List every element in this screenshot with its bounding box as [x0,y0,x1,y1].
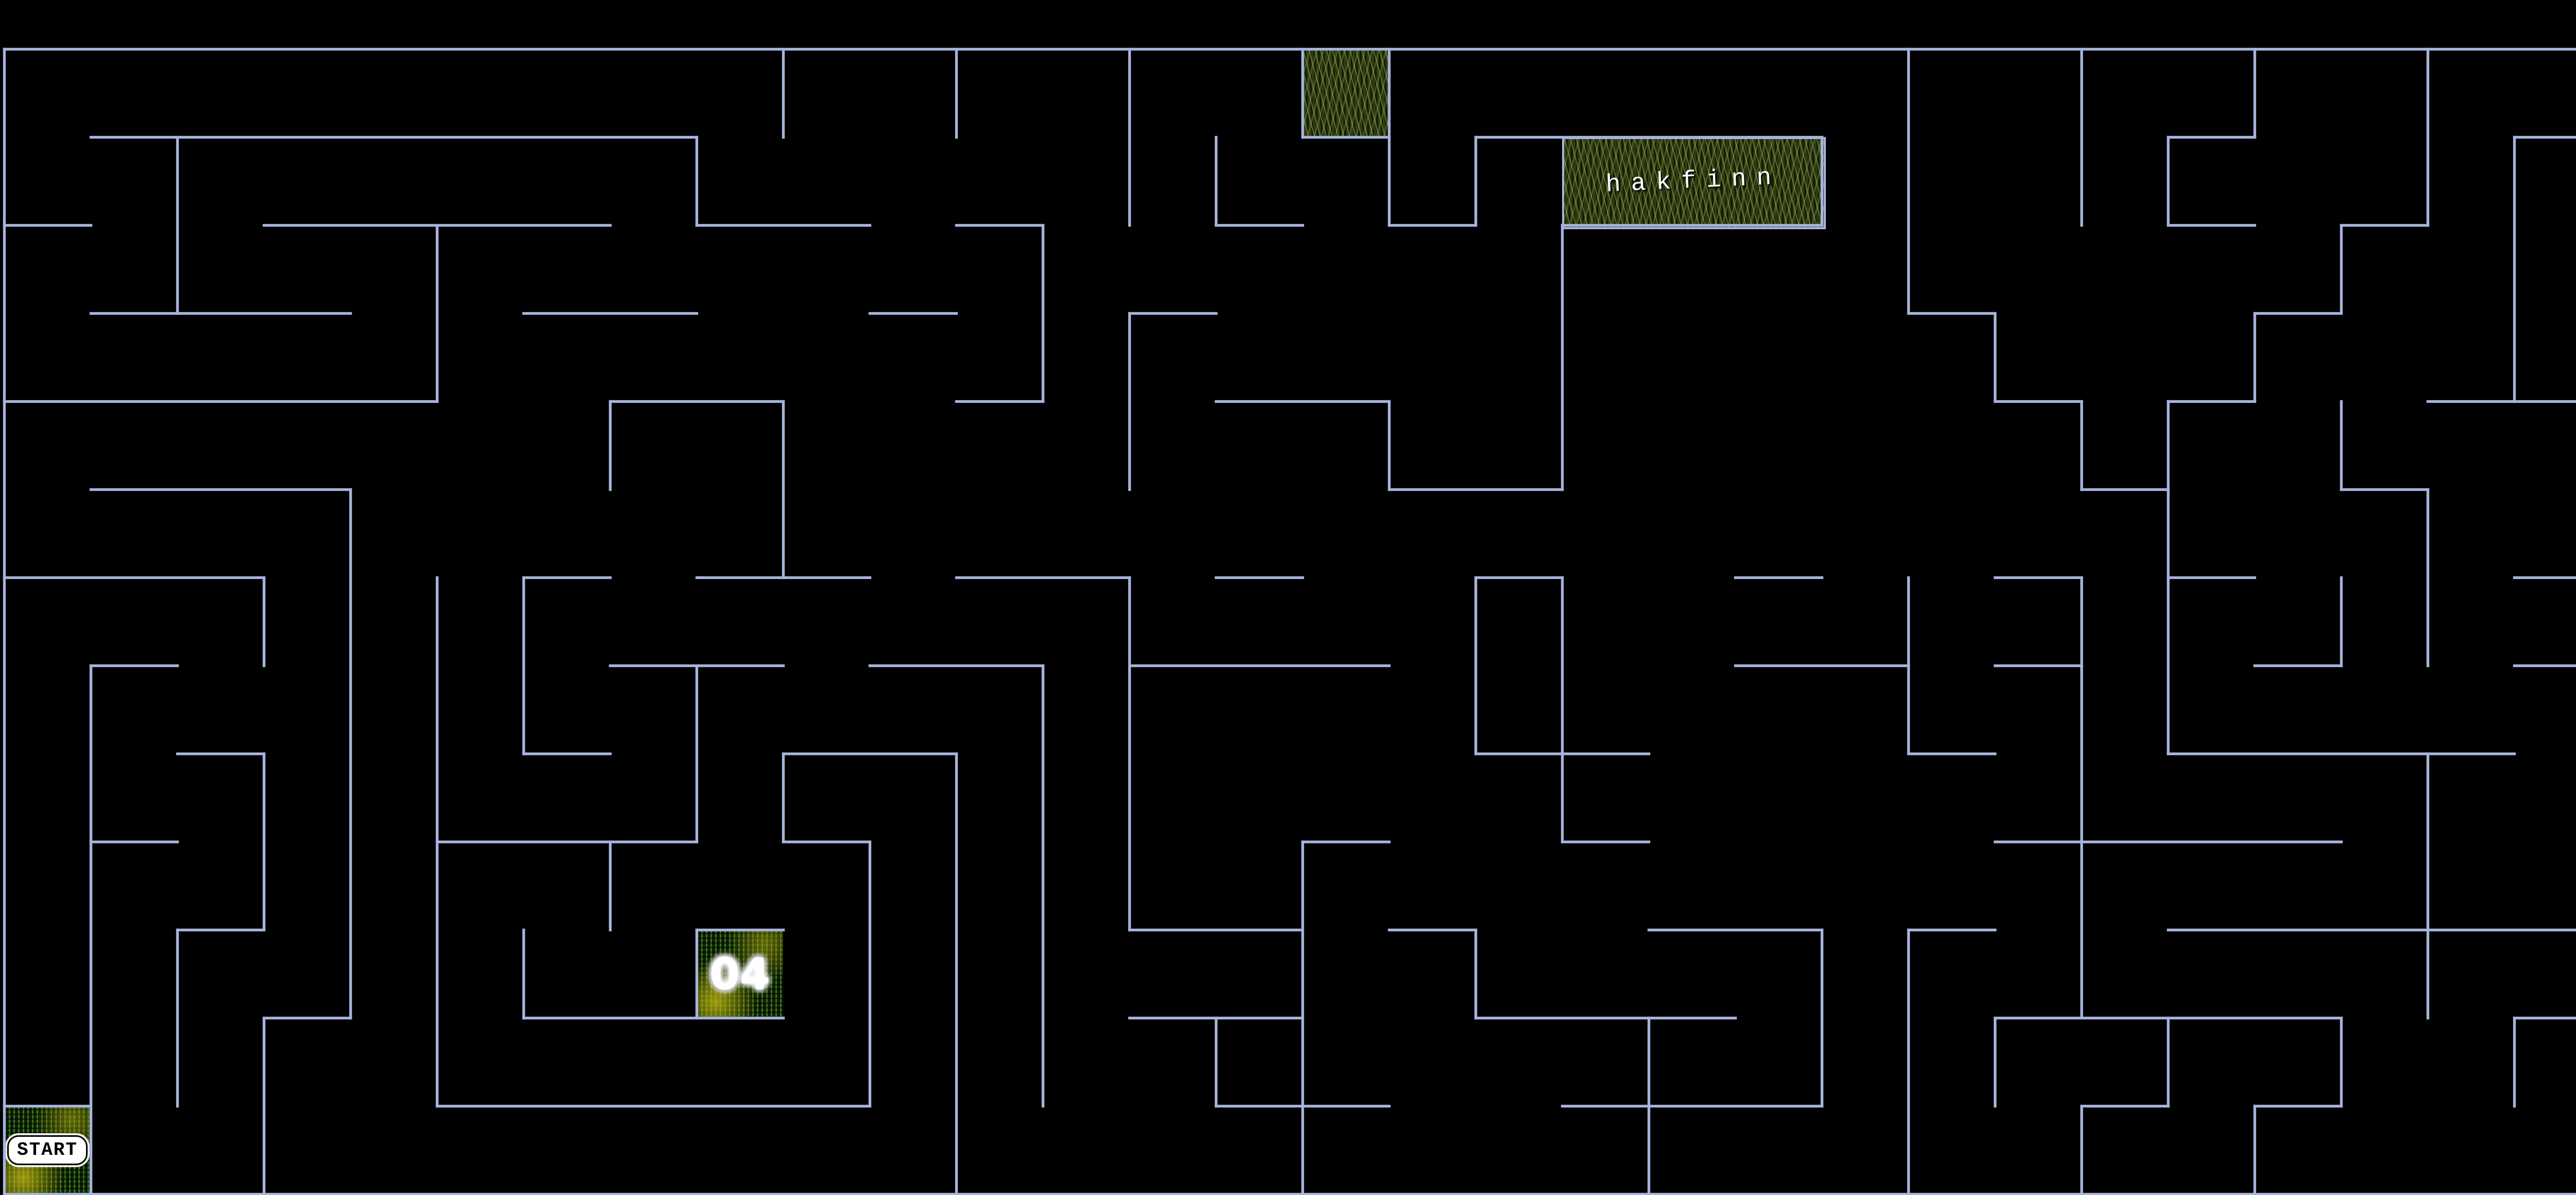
maze-wall [955,753,958,1195]
maze-wall [1994,312,1996,403]
maze-wall [869,841,871,1107]
maze-wall [176,929,179,1107]
maze-wall [2167,400,2256,403]
maze-wall [263,1017,265,1195]
maze-wall [176,753,265,755]
maze-wall [2513,1017,2516,1107]
maze-wall [522,1017,785,1019]
maze-wall [1907,312,1996,315]
maze-wall [1475,1017,1737,1019]
maze-wall [955,48,958,139]
maze-wall [522,929,525,1019]
maze-wall [1821,136,1823,227]
maze-wall [2253,664,2343,667]
maze-wall [1648,1017,1650,1195]
maze-wall [176,136,179,315]
maze-wall [3,224,92,227]
checkpoint-number: 04 [710,949,770,999]
maze-wall [2427,400,2576,403]
maze-wall [522,576,612,579]
maze-wall [869,312,958,315]
maze-wall [2080,400,2083,491]
maze-wall [1994,576,2083,579]
maze-wall [1907,48,1910,315]
maze-wall [1994,841,2343,843]
maze-wall [1561,224,1823,227]
maze-wall [1561,224,1564,491]
maze-wall [1215,136,1217,227]
maze-wall [1475,576,1477,755]
maze-wall [2167,136,2170,227]
start-cell[interactable]: START [4,1106,91,1194]
maze-wall [2340,576,2343,667]
maze-wall [2340,224,2343,315]
maze-wall [436,841,698,843]
watermark-label: hakfinn [1605,163,1783,199]
maze-wall [1475,576,1564,579]
maze-wall [3,48,2576,50]
maze-wall [90,488,352,491]
maze-wall [1128,312,1131,491]
maze-wall [1301,841,1304,1195]
maze-wall [696,664,698,843]
maze-wall [1821,929,1823,1107]
maze-wall [2167,224,2256,227]
maze-wall [609,400,612,491]
maze-wall [2167,576,2256,579]
maze-wall [2080,48,2083,227]
maze-wall [1128,929,1304,931]
maze-wall [176,929,265,931]
maze-wall [1994,400,2083,403]
maze-wall [2080,1105,2083,1195]
maze-wall [2253,312,2343,315]
start-badge: START [7,1135,88,1165]
maze-wall [1388,224,1477,227]
maze-wall [1475,136,1477,227]
maze-wall [1994,664,2083,667]
maze-wall [1648,929,1823,931]
maze-wall [1475,136,1823,139]
maze-wall [782,48,785,139]
maze-wall [2253,48,2256,139]
maze-wall [1128,312,1217,315]
maze-wall [2513,136,2516,403]
maze-wall [2167,929,2576,931]
maze-wall [955,224,1044,227]
maze-wall [1042,664,1044,1107]
maze-wall [696,136,698,227]
maze-wall [782,841,871,843]
maze-wall [1042,224,1044,403]
maze-wall [2427,48,2429,227]
maze-wall [1128,48,1131,227]
maze-wall [1388,48,1391,227]
maze-wall [3,400,438,403]
maze-wall [1561,576,1564,843]
checkpoint-cell-04[interactable]: 04 [697,930,783,1018]
maze-wall [2167,136,2256,139]
maze-wall [1215,224,1304,227]
watermark-banner: hakfinn [1562,137,1826,229]
maze-wall [2340,224,2429,227]
maze-wall [3,1105,92,1107]
maze-wall [522,753,612,755]
maze-wall [1475,929,1477,1019]
maze-wall [2167,753,2516,755]
maze-wall [436,224,438,403]
maze-wall [1907,753,1996,755]
maze-wall [1301,841,1391,843]
maze-wall [1301,48,1304,139]
maze-wall [2167,400,2170,755]
maze-wall [869,664,1044,667]
maze-wall [2080,1105,2170,1107]
maze-wall [2513,1017,2576,1019]
maze-wall [1561,841,1650,843]
maze-wall [1215,1017,1217,1107]
maze-wall [782,400,785,579]
maze-wall [1215,400,1391,403]
maze-wall [2167,1017,2170,1107]
maze-wall [1388,929,1477,931]
maze-wall [263,753,265,931]
maze-wall [90,664,92,1195]
maze-wall [263,576,265,667]
maze-wall [1561,1105,1823,1107]
maze-wall [1388,400,1391,491]
maze-wall [955,400,1044,403]
maze-wall [696,224,871,227]
maze-wall [436,576,438,1107]
maze-wall [696,929,785,931]
maze-wall [1994,1017,1996,1107]
maze-wall [609,841,612,931]
maze-wall [1734,576,1823,579]
maze-wall [90,841,179,843]
maze-wall [2340,1017,2343,1107]
maze-wall [1128,664,1391,667]
maze-wall [2080,488,2170,491]
maze-wall [349,488,352,1019]
maze-wall [90,312,352,315]
maze-wall [1734,664,1910,667]
maze-wall [782,753,958,755]
grass-patch-cell [1302,49,1389,137]
maze-wall [1301,136,1391,139]
maze-wall [2513,664,2576,667]
maze-wall [2253,1105,2256,1195]
maze-wall [3,576,265,579]
maze-wall [1128,576,1131,931]
maze-wall [3,1193,2576,1195]
maze-wall [2427,488,2429,667]
maze-wall [1907,929,1996,931]
maze-wall [696,929,698,1019]
maze-wall [2513,136,2576,139]
maze-wall [522,576,525,755]
maze-wall [436,1105,871,1107]
maze-wall [90,664,179,667]
maze-wall [2340,400,2343,491]
maze-wall [1215,576,1304,579]
maze-wall [90,136,698,139]
maze-wall [2253,1105,2343,1107]
maze-wall [2080,576,2083,1019]
maze-wall [1907,576,1910,755]
maze-wall [2340,488,2429,491]
maze-wall [609,400,785,403]
maze-board: hakfinn START FINISH 04 [0,0,2576,1195]
maze-wall [782,753,785,843]
maze-wall [3,48,6,1195]
maze-wall [263,1017,352,1019]
maze-wall [2427,753,2429,1019]
maze-wall [2253,312,2256,403]
maze-wall [522,312,698,315]
maze-wall [1907,929,1910,1195]
maze-wall [1388,488,1564,491]
maze-wall [2513,576,2576,579]
maze-wall [955,576,1131,579]
